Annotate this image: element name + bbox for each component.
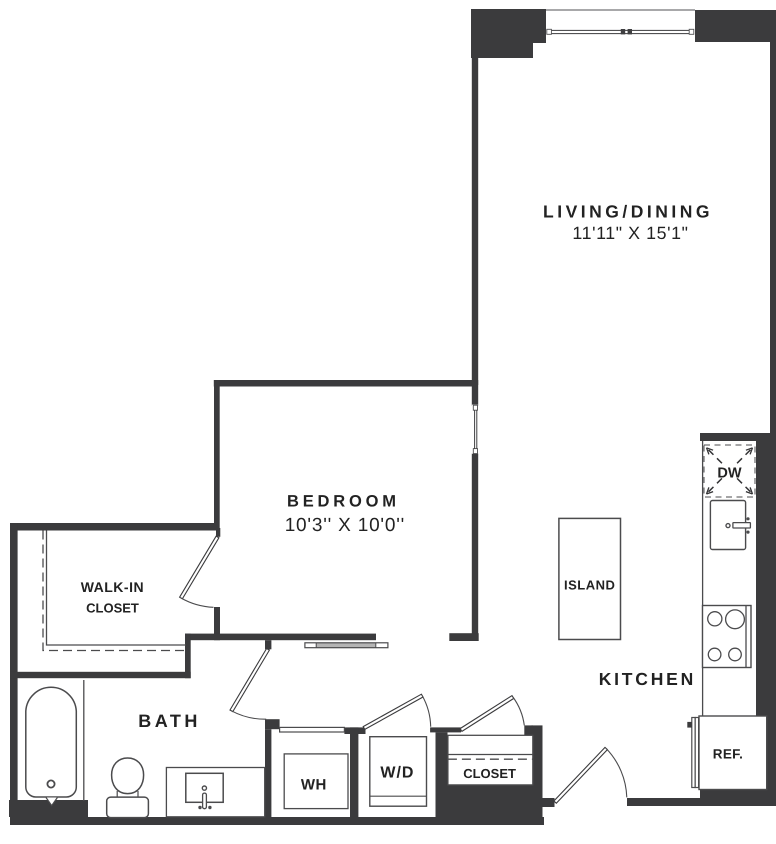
svg-text:WALK-IN: WALK-IN	[81, 579, 144, 595]
svg-text:KITCHEN: KITCHEN	[599, 669, 696, 689]
svg-text:REF.: REF.	[713, 747, 743, 762]
svg-text:11'11" X 15'1": 11'11" X 15'1"	[572, 223, 688, 243]
svg-text:LIVING/DINING: LIVING/DINING	[543, 202, 713, 222]
svg-text:BATH: BATH	[138, 711, 201, 731]
svg-text:W/D: W/D	[380, 765, 414, 782]
svg-text:ISLAND: ISLAND	[564, 578, 615, 593]
svg-text:CLOSET: CLOSET	[86, 601, 139, 616]
svg-text:WH: WH	[301, 777, 327, 794]
svg-text:CLOSET: CLOSET	[463, 766, 516, 781]
svg-text:DW: DW	[717, 466, 741, 482]
svg-text:BEDROOM: BEDROOM	[287, 493, 400, 511]
svg-text:10'3'' X 10'0'': 10'3'' X 10'0''	[285, 515, 405, 536]
